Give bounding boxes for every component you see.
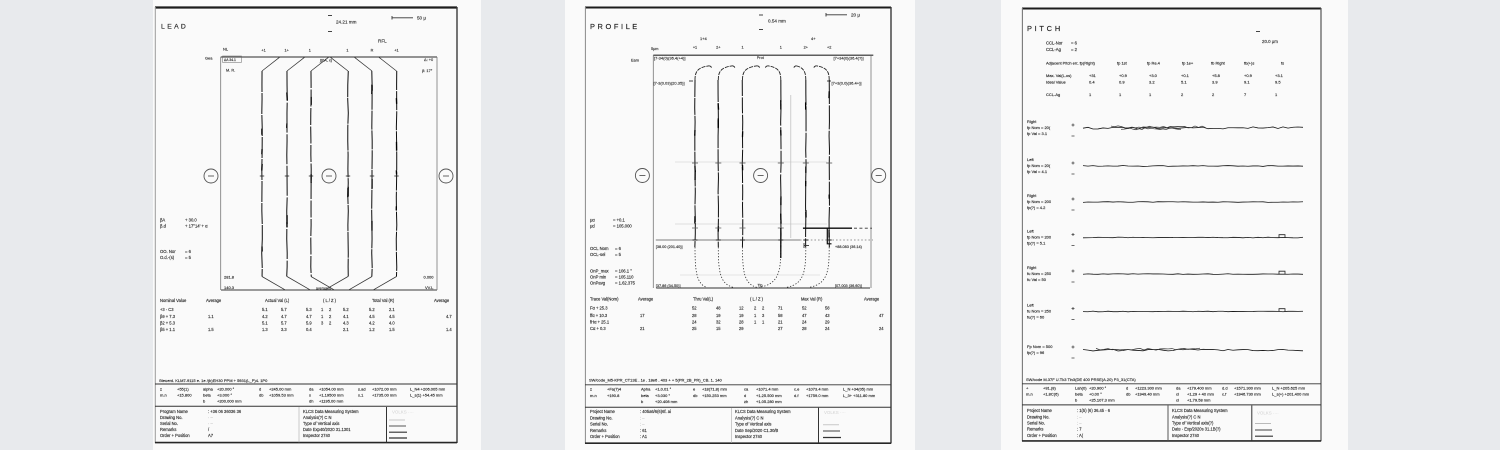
svg-text:+1223.300 mm: +1223.300 mm [1135, 386, 1162, 391]
svg-text:19: 19 [739, 313, 744, 318]
svg-text:fp Val = 3.1: fp Val = 3.1 [1027, 131, 1048, 136]
svg-text:+3.000 °: +3.000 ° [217, 392, 232, 397]
svg-text:fb Right: fb Right [1211, 60, 1226, 65]
svg-text:2: 2 [329, 314, 332, 319]
svg-text:+1949.40 mm: +1949.40 mm [1135, 392, 1160, 397]
svg-text:Drawing No.: Drawing No. [1027, 414, 1050, 419]
svg-text:+Fa(7)4: +Fa(7)4 [607, 387, 622, 392]
svg-text:Gea: Gea [205, 56, 213, 61]
svg-text:Fp Nom = 500: Fp Nom = 500 [1027, 344, 1053, 349]
svg-text:+150.253 mm: +150.253 mm [702, 393, 727, 398]
svg-text:47: 47 [802, 313, 807, 318]
svg-text:fp 1st: fp 1st [1117, 60, 1128, 65]
svg-text:28: 28 [692, 313, 697, 318]
svg-text:5.3: 5.3 [306, 307, 312, 312]
svg-text:+18(71.8) mm: +18(71.8) mm [702, 387, 728, 392]
svg-text:m.n: m.n [590, 393, 597, 398]
svg-text:SW/code M.37F U.Tk3 Tin3(DE 40: SW/code M.37F U.Tk3 Tin3(DE 400 PRSE(A.2… [1026, 377, 1136, 382]
svg-text:Nominal Value: Nominal Value [160, 298, 187, 303]
svg-text:VOLKS ····: VOLKS ···· [1257, 411, 1279, 416]
svg-text:ΔA 34.1: ΔA 34.1 [224, 58, 236, 62]
svg-text:= 1.62.375: = 1.62.375 [615, 281, 636, 286]
svg-text:9.5: 9.5 [1275, 80, 1281, 85]
svg-text:20 μ: 20 μ [851, 13, 860, 18]
svg-text:fb(+)s: fb(+)s [1244, 60, 1254, 65]
svg-text:3.9: 3.9 [1212, 80, 1218, 85]
svg-text:= 6: = 6 [615, 246, 622, 251]
svg-text:m.n: m.n [160, 392, 167, 397]
svg-text:3.3: 3.3 [281, 327, 287, 332]
svg-text:Left: Left [1027, 157, 1035, 162]
svg-text:Drawing No.: Drawing No. [590, 415, 613, 420]
svg-text:fp Nom = 20(: fp Nom = 20( [1027, 163, 1051, 168]
svg-text:50 μ: 50 μ [417, 15, 426, 20]
svg-text:A7: A7 [208, 433, 214, 438]
svg-text:dh: dh [309, 398, 313, 403]
svg-text:Analysis(?) C N: Analysis(?) C N [735, 415, 763, 420]
svg-text:Eam: Eam [631, 58, 639, 63]
svg-text:fp(?) = 96: fp(?) = 96 [1027, 350, 1045, 355]
svg-text:[07.003 (36.60)]: [07.003 (36.60)] [835, 284, 862, 288]
svg-text:CCL-Ag: CCL-Ag [1046, 47, 1062, 52]
svg-text:( L / Z ): ( L / Z ) [750, 297, 764, 302]
svg-text:= 105.000: = 105.000 [613, 224, 632, 229]
svg-text:L E A D: L E A D [161, 24, 186, 31]
svg-text:KLCS Data Measuring System: KLCS Data Measuring System [1172, 408, 1228, 413]
svg-text:β.d: β.d [160, 224, 167, 229]
svg-text:s.ad: s.ad [358, 386, 366, 391]
svg-text:+1.0.01 °: +1.0.01 ° [655, 387, 672, 392]
svg-text:fu Nom = 250: fu Nom = 250 [1027, 308, 1052, 313]
svg-text:+1.79.58 mm: +1.79.58 mm [1187, 397, 1211, 402]
svg-text:Adjacent Pitch err, fp(Right): Adjacent Pitch err, fp(Right) [1046, 60, 1096, 65]
svg-text:1.5: 1.5 [389, 327, 395, 332]
svg-text:2+: 2+ [804, 45, 809, 49]
svg-text:Serial No.: Serial No. [160, 421, 178, 426]
svg-text:4.5: 4.5 [369, 314, 375, 319]
svg-text:P R O F I L E: P R O F I L E [590, 22, 637, 31]
svg-text:db: db [1126, 392, 1131, 397]
svg-text:Apha: Apha [641, 387, 651, 392]
svg-text:1: 1 [346, 49, 348, 53]
svg-text:fp Re.4: fp Re.4 [1147, 60, 1161, 65]
svg-text:Project Name: Project Name [1027, 408, 1053, 413]
svg-text:: +36 06 36036 36: : +36 06 36036 36 [208, 409, 242, 414]
svg-text:58: 58 [825, 306, 830, 311]
svg-text:d: d [744, 393, 746, 398]
svg-text:0.4: 0.4 [1089, 80, 1095, 85]
svg-text:1.3: 1.3 [262, 327, 268, 332]
svg-text:+88.083 (36.14): +88.083 (36.14) [835, 245, 863, 249]
svg-text:fu(?) = 60: fu(?) = 60 [1027, 314, 1045, 319]
svg-text:: –: : – [1077, 414, 1082, 419]
svg-text:Trace Val(Nom): Trace Val(Nom) [590, 297, 619, 302]
svg-text:+1: +1 [261, 49, 265, 53]
svg-text:+245.00 mm: +245.00 mm [269, 386, 292, 391]
svg-text:CCL-Ag: CCL-Ag [1046, 92, 1060, 97]
svg-text:+ 17°14' + α: + 17°14' + α [185, 224, 208, 229]
svg-text:fHα + 25.1: fHα + 25.1 [590, 320, 610, 325]
svg-text:Type of Vertical axis: Type of Vertical axis [303, 421, 339, 426]
svg-text:5.1: 5.1 [262, 320, 268, 325]
svg-text:b: b [203, 398, 206, 403]
svg-text:z: z [590, 387, 592, 392]
svg-text:Cα + 0.3: Cα + 0.3 [590, 326, 606, 331]
svg-text:15: 15 [716, 326, 721, 331]
svg-text:2: 2 [762, 306, 765, 311]
svg-text:4.0: 4.0 [389, 320, 395, 325]
svg-text:43: 43 [825, 313, 830, 318]
svg-text:fu Val = 50: fu Val = 50 [1027, 277, 1047, 282]
svg-text:+1.19500 mm: +1.19500 mm [319, 392, 344, 397]
svg-text:OCL-sel: OCL-sel [590, 252, 605, 257]
svg-text:+2: +2 [827, 45, 831, 49]
svg-text:Max Val (R): Max Val (R) [801, 297, 823, 302]
svg-text:Average: Average [638, 297, 654, 302]
svg-text:Date Sep/2020 C1.30/B: Date Sep/2020 C1.30/B [735, 428, 779, 433]
svg-text:= +0.1: = +0.1 [613, 218, 626, 223]
svg-text:VV.L: VV.L [425, 285, 434, 290]
svg-text:+: + [1026, 386, 1029, 391]
svg-text:Date Exp40/2020 31.13: Date Exp40/2020 31.1301 [303, 427, 351, 432]
svg-text:2.1: 2.1 [389, 307, 395, 312]
svg-text:2: 2 [1181, 92, 1184, 97]
svg-text:1: 1 [762, 320, 765, 325]
svg-text:CCL-Nor: CCL-Nor [1046, 41, 1063, 46]
svg-text:1: 1 [741, 45, 743, 49]
svg-text:β2 + 5.3: β2 + 5.3 [160, 320, 176, 325]
svg-text:1.4: 1.4 [446, 327, 452, 332]
svg-text:2: 2 [329, 307, 332, 312]
svg-text:1: 1 [780, 45, 782, 49]
svg-text:x.1: x.1 [358, 392, 364, 397]
svg-text:μd: μd [590, 224, 595, 229]
svg-text:averaged: averaged [316, 287, 331, 291]
svg-text:+25.107.3 mm: +25.107.3 mm [1089, 397, 1115, 402]
svg-text:Serial No.: Serial No. [1027, 421, 1045, 426]
svg-text:db: db [259, 392, 264, 397]
svg-text:Type of Vertical axis: Type of Vertical axis [735, 422, 771, 427]
svg-text:= 106.1 °: = 106.1 ° [615, 269, 632, 274]
svg-text:+1: +1 [394, 49, 398, 53]
svg-text:Average: Average [864, 297, 880, 302]
svg-text:5.7: 5.7 [281, 320, 287, 325]
svg-text:+91.(8): +91.(8) [1043, 386, 1056, 391]
svg-text:71: 71 [778, 306, 783, 311]
svg-text:KLCS Data Measuring System: KLCS Data Measuring System [735, 409, 791, 414]
svg-text:+55(1): +55(1) [177, 386, 189, 391]
svg-text:1: 1 [1089, 92, 1092, 97]
svg-text:= 5: = 5 [185, 255, 192, 260]
svg-text:Total Val (R): Total Val (R) [372, 298, 395, 303]
svg-text:4.1: 4.1 [343, 314, 349, 319]
svg-text:Lah(0): Lah(0) [1075, 386, 1087, 391]
svg-text:β9 + 7.3: β9 + 7.3 [160, 314, 176, 319]
svg-text:24: 24 [879, 326, 884, 331]
svg-text:Right: Right [1027, 265, 1037, 270]
svg-text:+0.9: +0.9 [1244, 73, 1253, 78]
svg-text:βA: βA [160, 218, 165, 223]
svg-text:28: 28 [739, 320, 744, 325]
svg-text:: 405a6/6(6)6f. ai: : 405a6/6(6)6f. ai [640, 409, 671, 414]
svg-text:b: b [641, 399, 644, 404]
svg-text:+200.000 mm: +200.000 mm [217, 398, 242, 403]
svg-text:μα: μα [590, 218, 595, 223]
svg-text:z: z [160, 386, 162, 391]
svg-text:1: 1 [321, 307, 324, 312]
svg-text:[7-34(0)(36.4(+4)]: [7-34(0)(36.4(+4)] [654, 55, 685, 60]
svg-text:+1.05.280 mm: +1.05.280 mm [756, 399, 782, 404]
svg-text:1.5: 1.5 [208, 327, 214, 332]
svg-text:OnPavg: OnPavg [590, 281, 606, 286]
svg-text:Average: Average [434, 298, 450, 303]
svg-text:4.2: 4.2 [369, 320, 375, 325]
svg-text:21: 21 [778, 320, 783, 325]
svg-text:29: 29 [825, 320, 830, 325]
svg-text:3: 3 [321, 320, 324, 325]
svg-text:RFL: RFL [378, 39, 387, 44]
svg-text:d.d: d.d [1222, 386, 1228, 391]
svg-text:Analysis(?) C N: Analysis(?) C N [1172, 414, 1200, 419]
svg-text:OnP_max: OnP_max [590, 269, 610, 274]
svg-text:+1735.00 mm: +1735.00 mm [372, 392, 397, 397]
svg-text:1: 1 [1119, 92, 1122, 97]
svg-text:[38.00 (201.40)]: [38.00 (201.40)] [656, 245, 683, 249]
svg-text:1: 1 [754, 320, 757, 325]
svg-text:Date · Exp/2020s 31.1B(?: Date · Exp/2020s 31.1B(?) [1172, 427, 1221, 432]
svg-text:Left: Left [1027, 302, 1035, 307]
svg-text:9.1: 9.1 [1244, 80, 1250, 85]
svg-text:+20.900 °: +20.900 ° [1089, 386, 1107, 391]
svg-text:27: 27 [778, 326, 783, 331]
svg-text:21: 21 [640, 326, 645, 331]
svg-text:20.0 μm: 20.0 μm [1262, 39, 1278, 44]
svg-text:+3 · C3: +3 · C3 [160, 307, 174, 312]
svg-text:281.8: 281.8 [224, 275, 235, 280]
svg-text:1: 1 [1275, 92, 1278, 97]
svg-text:b: b [1075, 397, 1078, 402]
svg-text:+20.000 °: +20.000 ° [217, 386, 235, 391]
svg-text:52: 52 [802, 306, 807, 311]
svg-text:+1.8C(6): +1.8C(6) [1043, 392, 1059, 397]
svg-text:5.1: 5.1 [1181, 80, 1187, 85]
svg-text:M. R.: M. R. [226, 68, 235, 73]
svg-text:= 2: = 2 [1071, 47, 1078, 52]
svg-text:Remarks: Remarks [590, 428, 606, 433]
svg-text:+0.1: +0.1 [1181, 73, 1190, 78]
svg-text:alpha: alpha [203, 386, 214, 391]
svg-text:1: 1 [309, 49, 311, 53]
svg-text:fp(?) = 4.2: fp(?) = 4.2 [1027, 205, 1046, 210]
svg-text:5.2: 5.2 [343, 307, 349, 312]
svg-text:19: 19 [716, 313, 721, 318]
svg-text:Order + Position: Order + Position [1027, 433, 1057, 438]
svg-text:Right: Right [1027, 119, 1037, 124]
svg-text:0.54 mm: 0.54 mm [768, 19, 786, 24]
svg-text:Ideal Value: Ideal Value [1046, 80, 1066, 85]
svg-text:: A(: : A( [1077, 433, 1084, 438]
svg-text:Inspector 2740: Inspector 2740 [1172, 433, 1200, 438]
svg-text:cl: cl [1176, 392, 1179, 397]
svg-text:beta: beta [641, 393, 650, 398]
svg-text:+0.9: +0.9 [1119, 73, 1128, 78]
svg-text:Left: Left [1027, 228, 1035, 233]
svg-text:4.2: 4.2 [262, 314, 268, 319]
svg-text:1.1: 1.1 [208, 314, 214, 319]
svg-text:Remarks: Remarks [160, 427, 176, 432]
svg-text:fp Nom = 200: fp Nom = 200 [1027, 234, 1052, 239]
svg-text:· –: · – [208, 421, 214, 426]
svg-text:3: 3 [762, 313, 765, 318]
svg-text:KLCS Data Measuring System: KLCS Data Measuring System [303, 409, 359, 414]
svg-text:ca: ca [744, 387, 749, 392]
svg-text:= 5: = 5 [615, 252, 622, 257]
svg-text:+1059.53 mm: +1059.53 mm [269, 392, 294, 397]
svg-text:+190.8: +190.8 [607, 393, 620, 398]
svg-text:L_N +34(05) mm: L_N +34(05) mm [843, 387, 874, 392]
svg-text:0.000: 0.000 [424, 275, 435, 280]
svg-text:· –: · – [208, 415, 214, 420]
svg-text:+0.00 °: +0.00 ° [1089, 392, 1102, 397]
svg-text:beta: beta [1075, 392, 1084, 397]
svg-text:Inspector 2740: Inspector 2740 [303, 433, 331, 438]
svg-text:Inspector 2740: Inspector 2740 [735, 434, 763, 439]
svg-text:db: db [693, 393, 698, 398]
svg-text:5μm: 5μm [651, 47, 658, 51]
svg-text:R: R [371, 49, 374, 53]
svg-text:L_N4 +206.005 mm: L_N4 +206.005 mm [410, 386, 446, 391]
svg-text:OO. Nor: OO. Nor [160, 249, 176, 254]
svg-text:4+: 4+ [811, 36, 816, 41]
svg-text:3.2: 3.2 [1149, 80, 1155, 85]
svg-text:12: 12 [739, 306, 744, 311]
svg-text:Project Name: Project Name [590, 409, 616, 414]
svg-text:Order + Position: Order + Position [160, 433, 190, 438]
svg-text:24: 24 [825, 326, 830, 331]
svg-text:d: d [1126, 386, 1128, 391]
svg-text:0.9: 0.9 [1119, 80, 1125, 85]
svg-text:1: 1 [754, 313, 757, 318]
svg-text:+1946.730 mm: +1946.730 mm [1234, 392, 1261, 397]
svg-text:β: 17°: β: 17° [422, 68, 433, 73]
svg-text:+1.25.500 mm: +1.25.500 mm [756, 393, 782, 398]
svg-text:d: d [259, 386, 261, 391]
svg-text:: A1: : A1 [640, 434, 648, 439]
svg-text:VOLKS ····: VOLKS ···· [392, 410, 414, 415]
svg-text:= 105.110: = 105.110 [615, 275, 634, 280]
svg-text:VOLKS ····: VOLKS ···· [824, 410, 846, 415]
svg-text:28: 28 [802, 326, 807, 331]
svg-text:24: 24 [802, 320, 807, 325]
svg-text:+1195.00 mm: +1195.00 mm [319, 398, 344, 403]
svg-text:1+4: 1+4 [700, 36, 708, 41]
svg-text:58: 58 [778, 313, 783, 318]
svg-text:beta: beta [203, 392, 212, 397]
svg-text:17: 17 [640, 313, 645, 318]
svg-text:5.1: 5.1 [262, 307, 268, 312]
svg-text:+1: +1 [693, 45, 697, 49]
svg-text:1.2: 1.2 [369, 327, 375, 332]
svg-text:= 6: = 6 [185, 249, 192, 254]
svg-text:L_3+ +311.80 mm: L_3+ +311.80 mm [843, 393, 876, 398]
svg-text:5.2: 5.2 [369, 307, 375, 312]
svg-text:[7-3(0.03)(20.35)]: [7-3(0.03)(20.35)] [654, 81, 685, 86]
svg-text:Max. Val(L.os): Max. Val(L.os) [1046, 73, 1072, 78]
svg-text:+3.030 °: +3.030 ° [655, 393, 670, 398]
svg-text:: 7: : 7 [1077, 427, 1082, 432]
svg-text:: 61: : 61 [640, 428, 648, 433]
svg-text:Average: Average [206, 298, 222, 303]
svg-text:+20.408 mm: +20.408 mm [655, 399, 678, 404]
svg-text:O.d.-(s): O.d.-(s) [160, 255, 175, 260]
svg-text:2+: 2+ [716, 45, 721, 49]
svg-text:+1073.4 mm: +1073.4 mm [806, 387, 829, 392]
svg-text:Order + Position: Order + Position [590, 434, 620, 439]
svg-text:SW/code_M5-KPR_CT13E . 1e . 18: SW/code_M5-KPR_CT13E . 1e . 18e6 . 403 +… [589, 377, 723, 382]
svg-text:+1.29 + 40 mm: +1.29 + 40 mm [1187, 392, 1215, 397]
svg-text:+179.400 mm: +179.400 mm [1187, 386, 1212, 391]
svg-text:fu Nom = 250: fu Nom = 250 [1027, 271, 1052, 276]
svg-text:Δ: +0: Δ: +0 [424, 57, 434, 62]
svg-text:52: 52 [692, 306, 697, 311]
svg-text:/: / [208, 427, 210, 432]
svg-text:2: 2 [1212, 92, 1215, 97]
svg-text:4.7: 4.7 [446, 314, 452, 319]
svg-text:+1054.00 mm: +1054.00 mm [319, 386, 344, 391]
svg-text:L_N +205.625 mm: L_N +205.625 mm [1272, 386, 1306, 391]
svg-text:+ 30.0: + 30.0 [185, 218, 197, 223]
svg-text:5.9: 5.9 [306, 320, 312, 325]
svg-text:fp 1e+: fp 1e+ [1182, 60, 1194, 65]
svg-text:c.e: c.e [794, 387, 800, 392]
svg-text:7: 7 [1244, 92, 1247, 97]
svg-text:fp Val = 4.1: fp Val = 4.1 [1027, 169, 1048, 174]
svg-text:P I T C H: P I T C H [1027, 24, 1061, 33]
svg-text:L_s(1) +54.45 mm: L_s(1) +54.45 mm [410, 392, 443, 397]
svg-text:Fα + 25.3: Fα + 25.3 [590, 306, 608, 311]
svg-text:Serial No.: Serial No. [590, 422, 608, 427]
svg-text:48: 48 [716, 306, 721, 311]
svg-text:+15.800: +15.800 [177, 392, 192, 397]
svg-text:2.1: 2.1 [343, 327, 349, 332]
svg-text:β5 + 1.1: β5 + 1.1 [160, 327, 176, 332]
svg-text:= 6: = 6 [1071, 41, 1078, 46]
svg-text:Analysis(?) C N: Analysis(?) C N [303, 415, 331, 420]
svg-text:1: 1 [321, 314, 324, 319]
svg-text:da: da [309, 386, 314, 391]
svg-text:24: 24 [692, 320, 697, 325]
svg-text:29: 29 [739, 326, 744, 331]
svg-text:+1071.4 mm: +1071.4 mm [756, 387, 779, 392]
svg-text:fp Nom = 20(: fp Nom = 20( [1027, 125, 1051, 130]
svg-text:+31: +31 [1089, 73, 1097, 78]
svg-text:zh: zh [744, 399, 748, 404]
svg-text:: –: : – [640, 415, 645, 420]
svg-text:da: da [1176, 386, 1181, 391]
svg-text:+1759.0 mm: +1759.0 mm [806, 393, 829, 398]
svg-text:Right: Right [1027, 193, 1037, 198]
svg-text:+1571.300 mm: +1571.300 mm [1234, 386, 1261, 391]
svg-text:1: 1 [1149, 92, 1152, 97]
svg-text:cl: cl [1176, 397, 1179, 402]
svg-text:+1072.00 mm: +1072.00 mm [372, 386, 397, 391]
svg-text:25: 25 [692, 326, 697, 331]
svg-text:140.3: 140.3 [224, 285, 235, 290]
svg-text:0.4: 0.4 [306, 327, 312, 332]
svg-text:d.f: d.f [794, 393, 799, 398]
svg-text:2: 2 [329, 320, 332, 325]
svg-text:: –: : – [640, 422, 645, 427]
